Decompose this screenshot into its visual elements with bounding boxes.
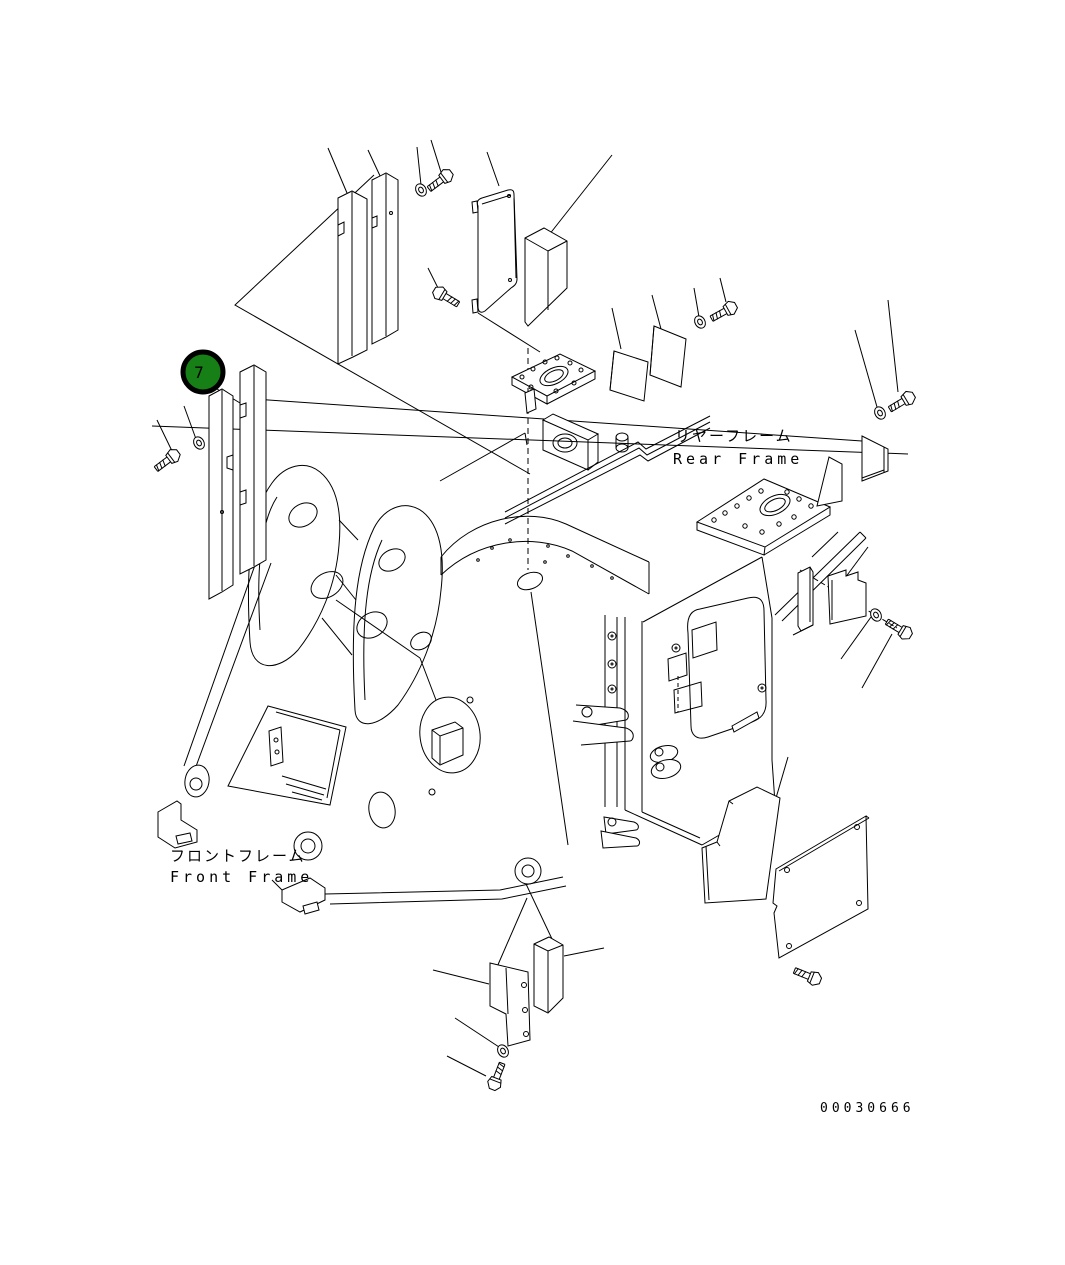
wear-strip-plate	[372, 173, 398, 344]
deck-box-bracket	[269, 727, 283, 766]
cover-panel	[477, 190, 517, 312]
hitch-bracket	[543, 414, 598, 440]
washer-icon	[872, 405, 887, 421]
bolt-icon	[883, 616, 914, 642]
hitch-mount-plate	[512, 354, 595, 396]
parts-diagram-canvas: 7 リヤーフレーム Rear Frame フロントフレーム Front Fram…	[0, 0, 1065, 1265]
drawing-number: 00030666	[820, 1101, 915, 1116]
gusset-plate	[610, 351, 648, 401]
bolt-icon	[792, 964, 823, 987]
notched-cover-plate	[702, 787, 780, 903]
deck-hole	[515, 569, 545, 593]
tow-pin-boss	[182, 763, 211, 799]
lower-hitch-lug	[601, 831, 640, 848]
top-left-wear-strips	[338, 173, 398, 364]
callout-number: 7	[194, 363, 204, 382]
parts-diagram-page: 7 リヤーフレーム Rear Frame フロントフレーム Front Fram…	[0, 0, 1065, 1265]
wear-strip-plate-7	[209, 389, 233, 599]
side-cover-bracket	[798, 567, 813, 631]
washer-icon	[692, 314, 707, 330]
part7-wear-strips	[209, 365, 266, 599]
corner-fin-plate	[817, 457, 842, 506]
gusset-plate	[650, 326, 686, 387]
cross-member	[432, 722, 463, 765]
callout-balloon-7[interactable]: 7	[183, 352, 223, 392]
bolt-icon	[886, 389, 917, 415]
gusset-plates-left-pair	[610, 326, 686, 401]
corner-plate-right	[862, 436, 888, 481]
wedge-block	[525, 228, 567, 326]
top-center-cover-group	[472, 190, 567, 326]
bolt-icon	[431, 284, 462, 310]
bolt-icon	[152, 447, 183, 475]
rear-frame-label-en: Rear Frame	[673, 450, 803, 468]
bolt-icon	[486, 1061, 509, 1092]
front-frame-label-jp: フロントフレーム	[170, 847, 306, 865]
rear-frame-label-jp: リヤーフレーム	[675, 427, 793, 445]
axle-boss	[515, 858, 541, 884]
front-frame-label-en: Front Frame	[170, 868, 313, 886]
bottom-right-covers	[702, 787, 869, 958]
bolt-icon	[708, 299, 739, 325]
bottom-center-cover-group	[490, 937, 563, 1046]
articulation-clevis-lower	[573, 721, 633, 745]
flat-cover-panel	[773, 816, 868, 958]
side-cover-plate	[828, 570, 866, 624]
washer-icon	[191, 435, 206, 451]
rear-frame-top-plate	[697, 479, 830, 547]
washer-icon	[868, 607, 883, 623]
front-frame-deck	[441, 516, 649, 594]
washer-icon	[413, 182, 428, 198]
wear-strip-plate	[240, 365, 266, 574]
